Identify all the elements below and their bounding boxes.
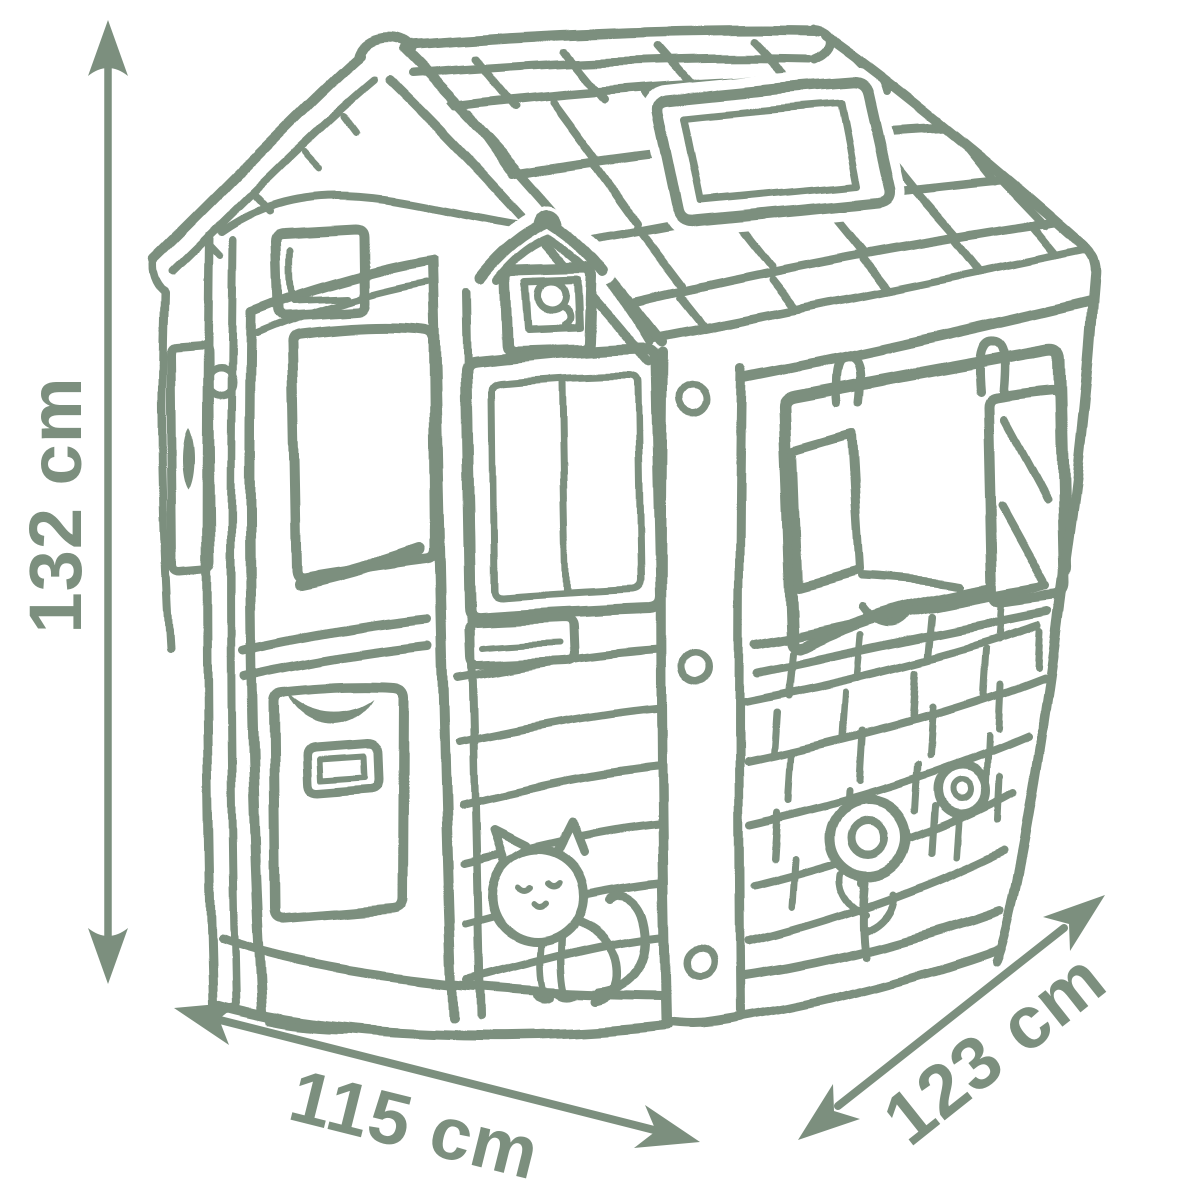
- corner-post: [661, 352, 742, 1024]
- dimension-diagram: 132 cm 115 cm 123 cm: [0, 0, 1201, 1200]
- roof-skylight: [657, 83, 890, 221]
- height-dimension-label: 132 cm: [14, 377, 97, 634]
- side-shutter: [989, 391, 1064, 602]
